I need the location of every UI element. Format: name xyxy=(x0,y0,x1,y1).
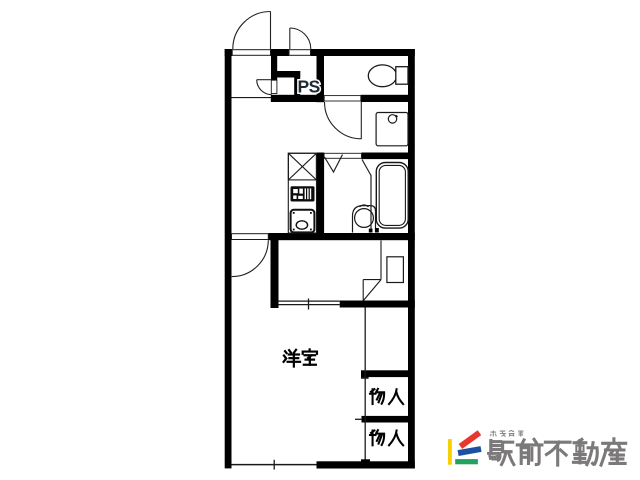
svg-text:PS: PS xyxy=(298,76,320,96)
